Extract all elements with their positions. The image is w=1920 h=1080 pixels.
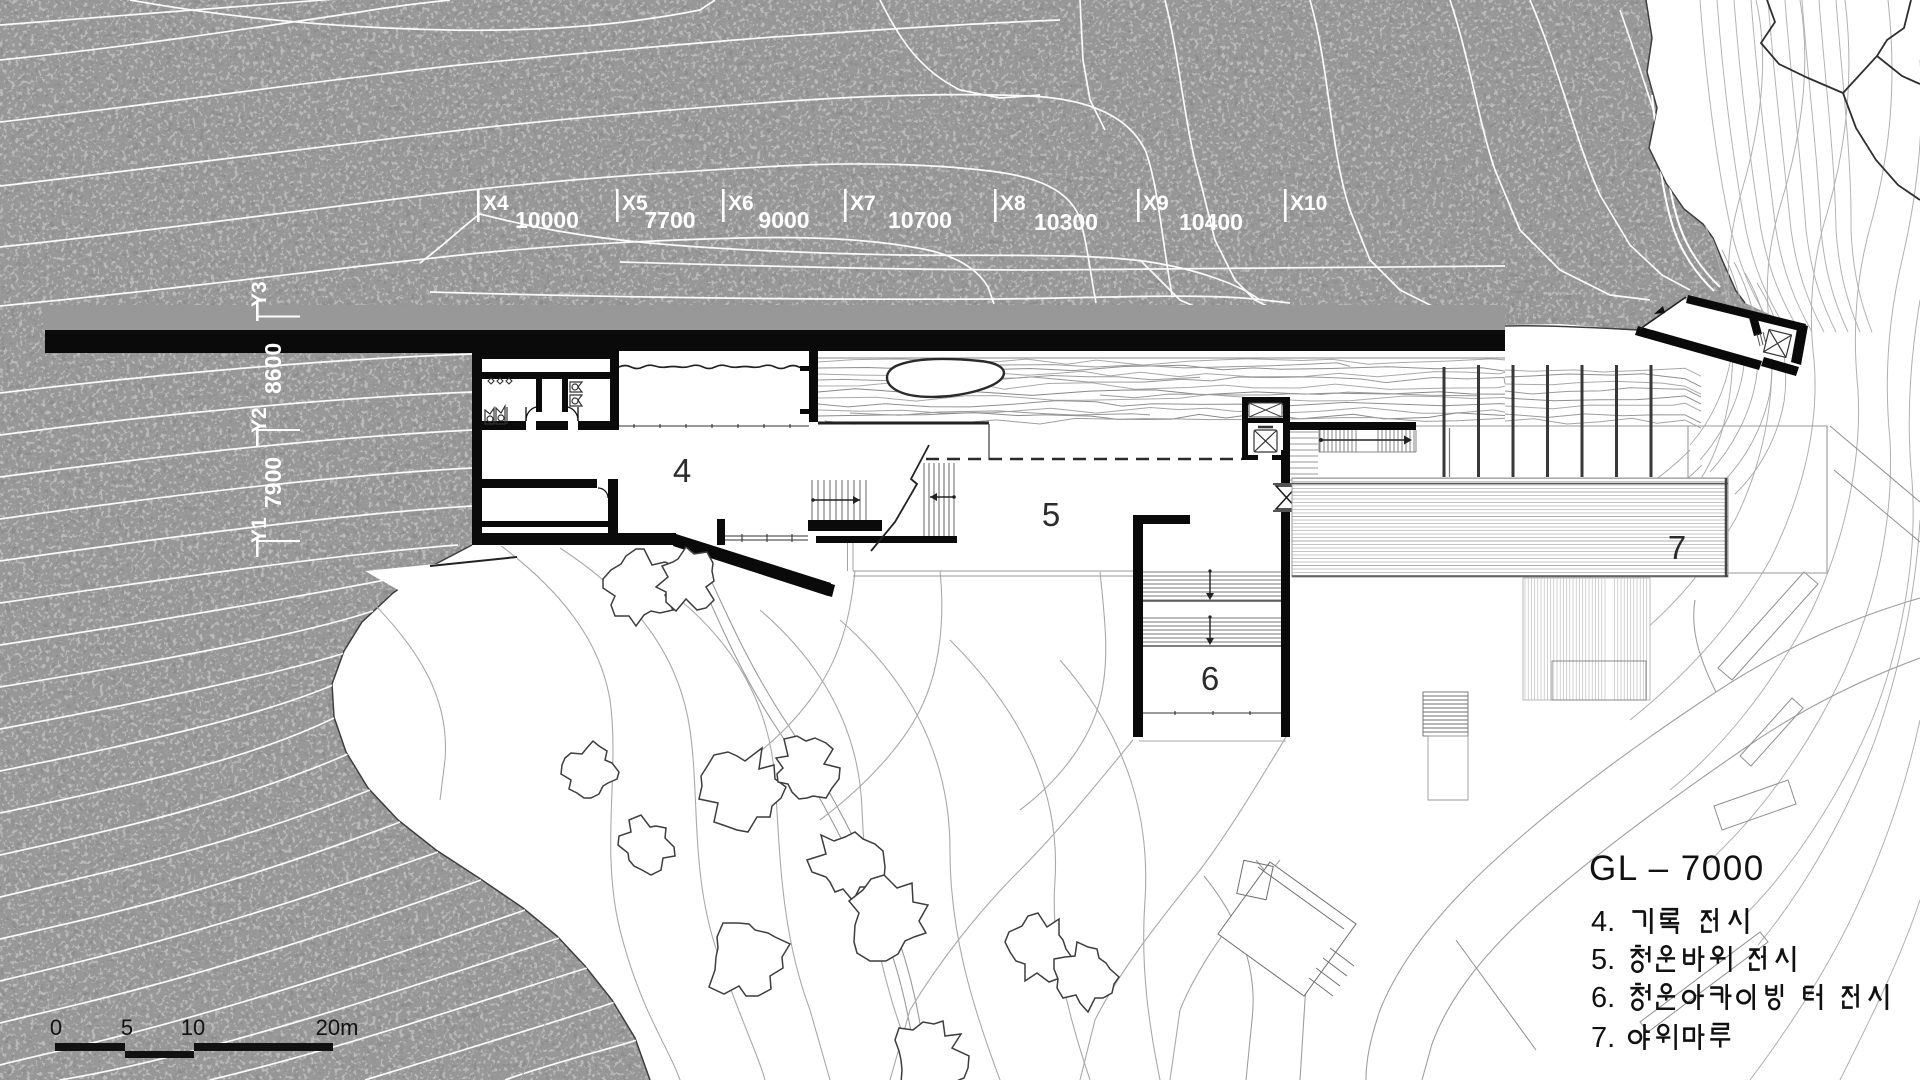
svg-text:5: 5 [121, 1015, 133, 1040]
svg-text:7700: 7700 [644, 207, 695, 233]
svg-text:10: 10 [181, 1015, 205, 1040]
svg-text:5: 5 [1042, 496, 1060, 533]
svg-text:Y1: Y1 [248, 517, 271, 543]
svg-text:7.: 7. [1591, 1022, 1615, 1054]
svg-text:Y2: Y2 [248, 407, 271, 433]
svg-text:0: 0 [50, 1015, 62, 1040]
svg-text:4.: 4. [1591, 906, 1615, 938]
svg-text:X6: X6 [728, 192, 754, 215]
svg-text:X9: X9 [1143, 192, 1169, 215]
svg-text:10300: 10300 [1034, 209, 1098, 235]
svg-text:10000: 10000 [515, 207, 579, 233]
svg-text:10400: 10400 [1179, 209, 1243, 235]
svg-text:X7: X7 [850, 192, 876, 215]
svg-text:Y3: Y3 [248, 281, 271, 307]
svg-text:4: 4 [673, 452, 691, 489]
svg-text:6.: 6. [1591, 982, 1615, 1014]
svg-text:X4: X4 [483, 192, 509, 215]
svg-text:5.: 5. [1591, 944, 1615, 976]
svg-text:20m: 20m [316, 1015, 359, 1040]
svg-text:7900: 7900 [260, 457, 286, 508]
svg-text:7: 7 [1668, 529, 1686, 566]
svg-text:8600: 8600 [260, 343, 286, 394]
svg-text:X10: X10 [1290, 192, 1327, 215]
svg-text:GL – 7000: GL – 7000 [1589, 849, 1765, 888]
svg-text:9000: 9000 [758, 207, 809, 233]
svg-text:10700: 10700 [888, 207, 952, 233]
svg-text:6: 6 [1201, 660, 1219, 697]
svg-text:X8: X8 [1000, 192, 1026, 215]
